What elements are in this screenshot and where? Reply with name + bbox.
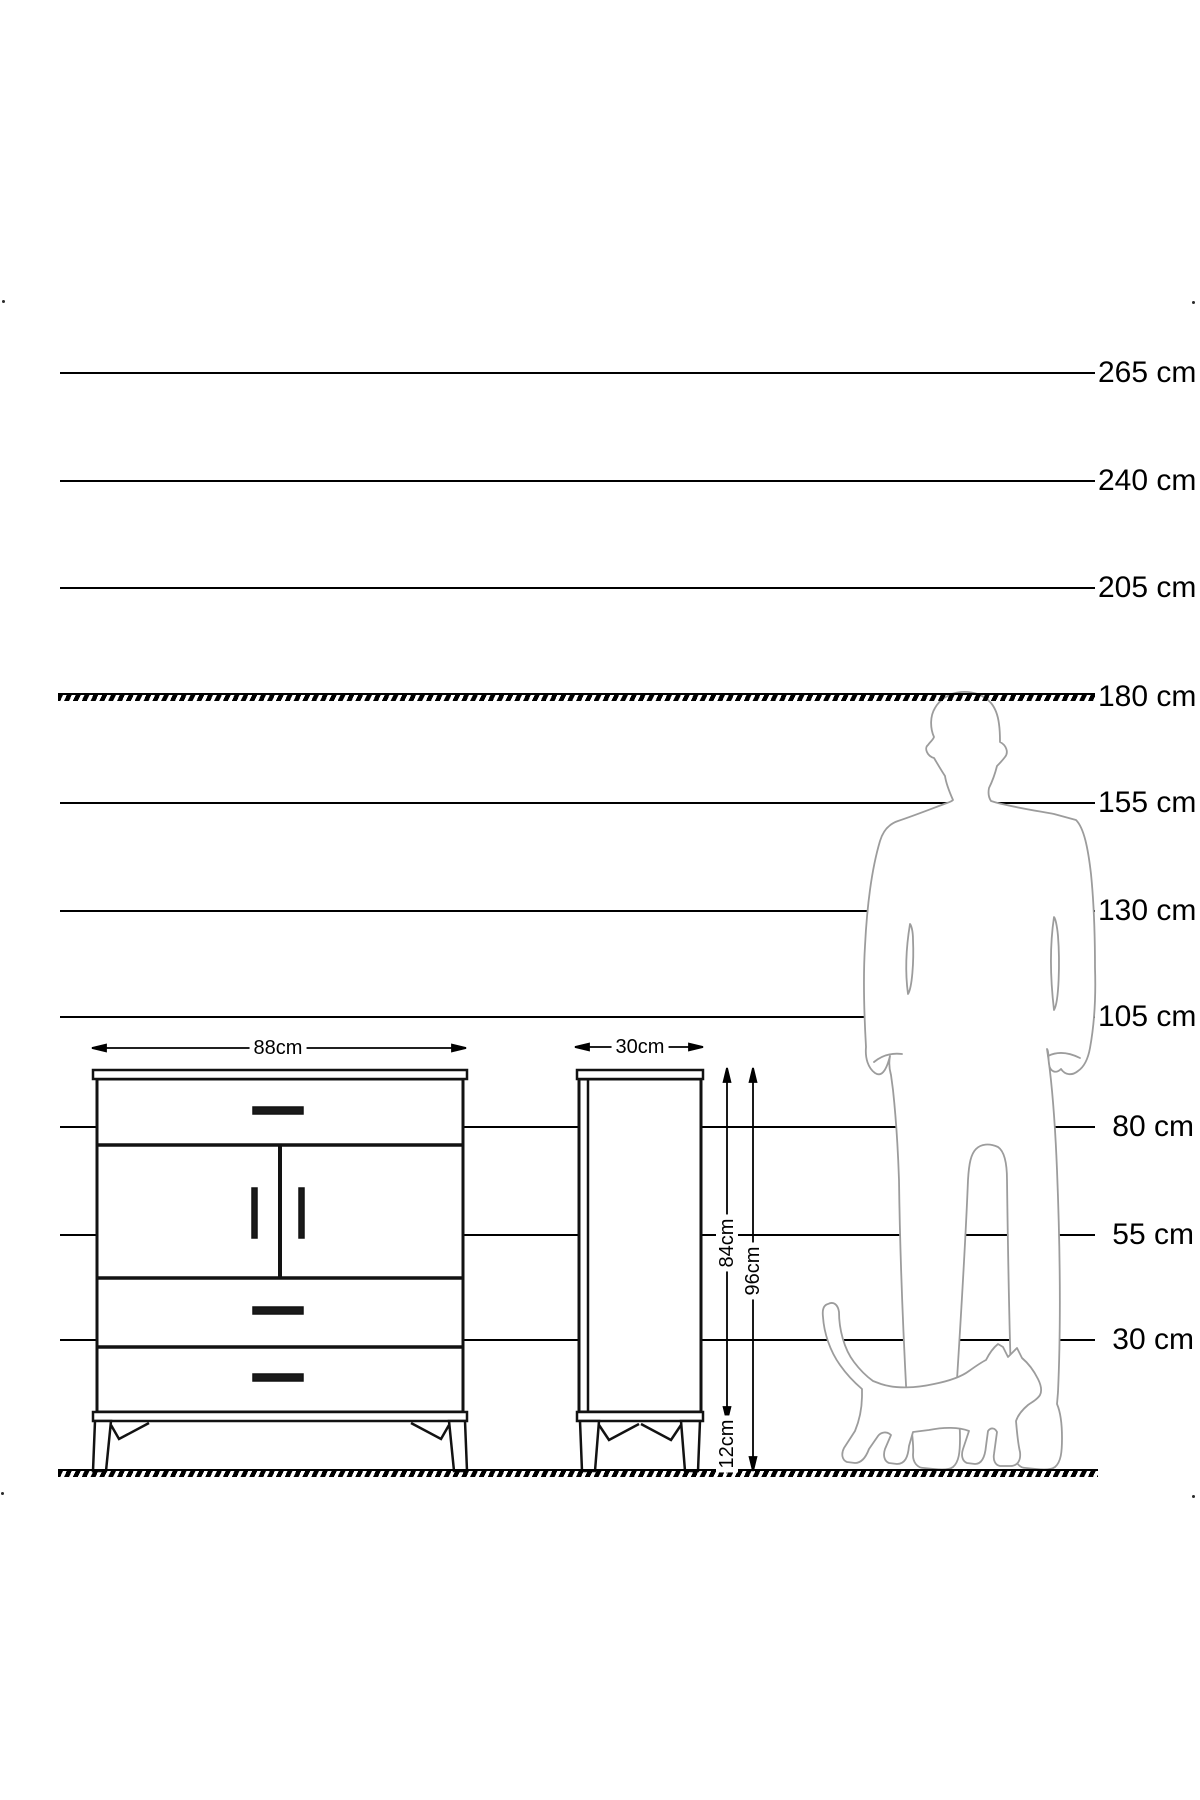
side-leg-left bbox=[580, 1421, 599, 1471]
door-handle-left bbox=[252, 1188, 257, 1238]
arrow-up-icon bbox=[750, 1068, 757, 1082]
leg-height-label: 12cm bbox=[716, 1416, 738, 1473]
height-line-180-dashed bbox=[58, 693, 1095, 701]
man-body-outline bbox=[864, 692, 1095, 1470]
drawer-handle-top bbox=[253, 1107, 303, 1114]
speck-top-left bbox=[2, 300, 5, 303]
front-width-label: 88cm bbox=[250, 1037, 307, 1059]
drawer-handle-middle bbox=[253, 1307, 303, 1314]
arrow-left-icon bbox=[575, 1044, 589, 1051]
man-silhouette bbox=[864, 692, 1095, 1470]
diagram-canvas bbox=[0, 0, 1200, 1800]
front-bottom-board bbox=[93, 1412, 467, 1421]
side-leg-left-brace bbox=[599, 1424, 639, 1440]
front-leg-right bbox=[449, 1421, 467, 1471]
side-legs bbox=[580, 1421, 700, 1471]
side-view bbox=[577, 1070, 703, 1471]
arrow-right-icon bbox=[452, 1045, 466, 1052]
side-leg-right bbox=[681, 1421, 700, 1471]
side-leg-right-brace bbox=[641, 1424, 681, 1440]
arrow-left-icon bbox=[92, 1045, 106, 1052]
door-handle-right bbox=[299, 1188, 304, 1238]
front-legs bbox=[93, 1421, 467, 1471]
drawer-handle-bottom bbox=[253, 1374, 303, 1381]
front-leg-left-brace bbox=[111, 1423, 149, 1439]
side-top-board bbox=[577, 1070, 703, 1079]
furniture-dimension-diagram: 265 cm 240 cm 205 cm 180 cm 155 cm 130 c… bbox=[0, 0, 1200, 1800]
front-leg-right-brace bbox=[411, 1423, 449, 1439]
speck-bottom-right bbox=[1192, 1495, 1195, 1498]
front-top-board bbox=[93, 1070, 467, 1079]
total-height-label: 96cm bbox=[742, 1243, 764, 1300]
arrow-right-icon bbox=[689, 1044, 703, 1051]
speck-top-right bbox=[1192, 301, 1195, 304]
side-body bbox=[579, 1079, 701, 1412]
ground-line bbox=[58, 1469, 1098, 1477]
speck-bottom-left bbox=[1, 1492, 4, 1495]
front-view bbox=[93, 1070, 467, 1471]
body-height-label: 84cm bbox=[716, 1215, 738, 1272]
front-leg-left bbox=[93, 1421, 111, 1471]
side-width-label: 30cm bbox=[612, 1036, 669, 1058]
arrow-up-icon bbox=[724, 1068, 731, 1082]
side-bottom-board bbox=[577, 1412, 703, 1421]
